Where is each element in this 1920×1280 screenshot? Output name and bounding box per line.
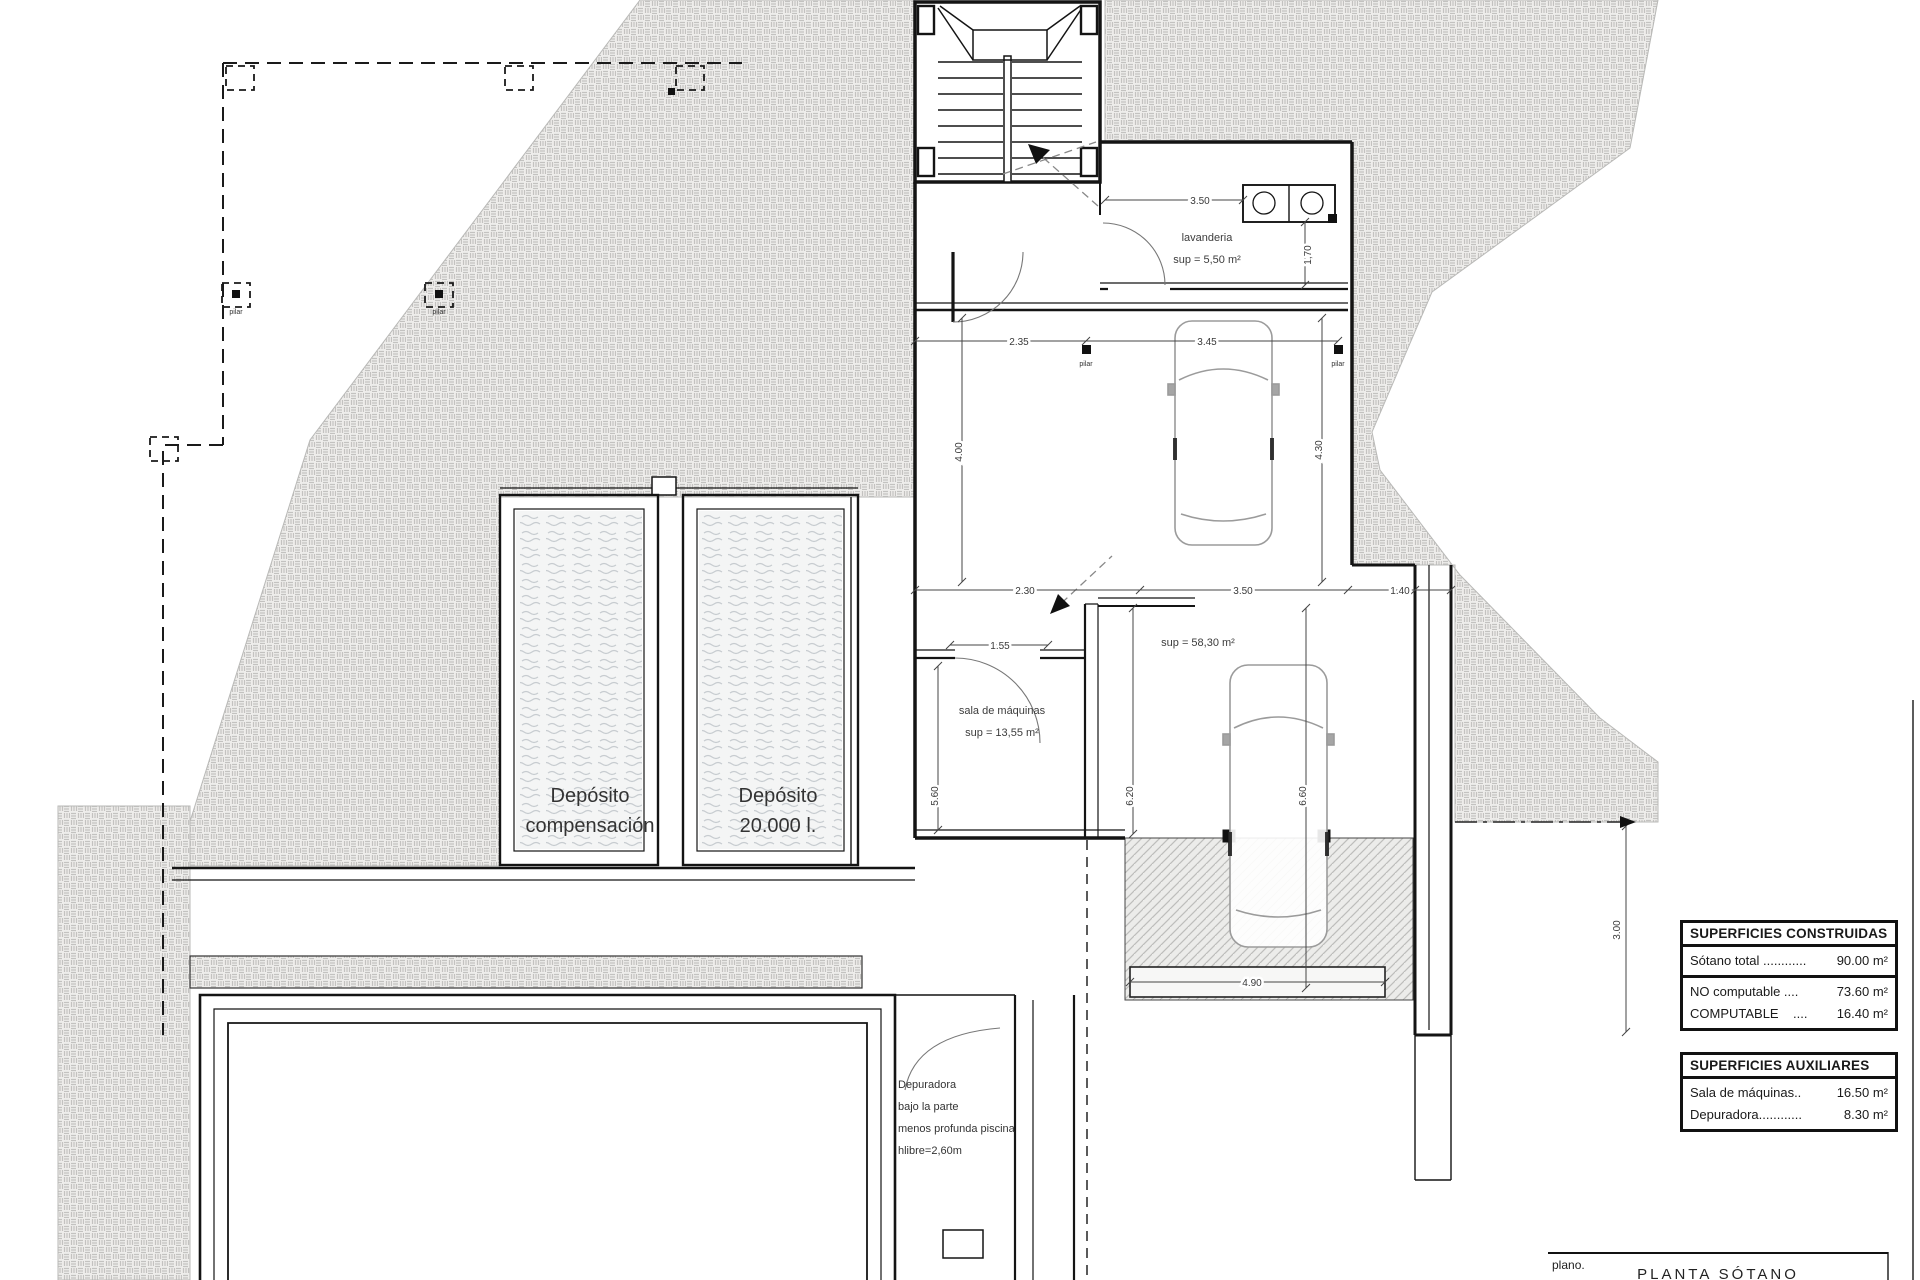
dim-350-top: 3.50 [1190, 196, 1210, 207]
terrain-strip-left [58, 806, 190, 1280]
machine-room-area: sup = 13,55 m² [965, 727, 1039, 739]
pilar-label: pilar [432, 309, 446, 316]
dim-350-mid: 3.50 [1233, 586, 1253, 597]
row-value: 16.40 m² [1837, 1003, 1888, 1025]
title-block-plan-name: PLANTA SÓTANO [1548, 1266, 1888, 1280]
dim-170: 1,70 [1303, 245, 1314, 265]
table-row: Sótano total ............ 90.00 m² [1690, 950, 1888, 972]
depuradora-note-line4: hlibre=2,60m [898, 1145, 962, 1157]
row-label: NO computable .... [1690, 981, 1798, 1003]
depuradora-note-line3: menos profunda piscina [898, 1123, 1016, 1135]
laundry-sink-icon [1301, 192, 1323, 214]
car-lower [1223, 665, 1334, 947]
row-value: 8.30 m² [1844, 1104, 1888, 1126]
row-label: COMPUTABLE .... [1690, 1003, 1808, 1025]
pilar-label: pilar [229, 309, 243, 316]
table-row: COMPUTABLE .... 16.40 m² [1690, 1003, 1888, 1025]
row-label: Sala de máquinas.. [1690, 1082, 1801, 1104]
dim-660: 6.60 [1298, 786, 1309, 806]
tank-compensation-line1: Depósito [551, 785, 630, 807]
laundry-name: lavanderia [1182, 232, 1234, 244]
areas-table-constructed: SUPERFICIES CONSTRUIDAS Sótano total ...… [1680, 920, 1898, 1031]
auxiliary-table-section: Sala de máquinas.. 16.50 m² Depuradora..… [1680, 1079, 1898, 1132]
floor-plan-sheet: pilar pilar [0, 0, 1920, 1280]
machine-room-name: sala de máquinas [959, 705, 1046, 717]
dim-560: 5.60 [930, 786, 941, 806]
floor-plan-drawing: pilar pilar [0, 0, 1920, 1280]
dim-155: 1.55 [990, 641, 1010, 652]
pool-north-wall-hatch [190, 956, 862, 988]
tank-compensation-line2: compensación [526, 815, 655, 837]
depuradora-note-line1: Depuradora [898, 1079, 957, 1091]
row-value: 73.60 m² [1837, 981, 1888, 1003]
row-value: 90.00 m² [1837, 950, 1888, 972]
pilar-label: pilar [1079, 361, 1093, 368]
row-label: Sótano total ............ [1690, 950, 1806, 972]
car-top [1168, 321, 1279, 545]
laundry-sink-icon [1253, 192, 1275, 214]
table-row: NO computable .... 73.60 m² [1690, 981, 1888, 1003]
row-label: Depuradora............ [1690, 1104, 1802, 1126]
dim-235: 2.35 [1009, 337, 1029, 348]
stairwell [915, 2, 1100, 182]
laundry-counter [1243, 185, 1337, 223]
garage-area: sup = 58,30 m² [1161, 637, 1235, 649]
tank-main-line2: 20.000 l. [740, 815, 817, 837]
pilar-label: pilar [1331, 361, 1345, 368]
dim-345: 3.45 [1197, 337, 1217, 348]
tank-main-line1: Depósito [739, 785, 818, 807]
dim-140: 1.40 [1390, 586, 1410, 597]
dim-430: 4.30 [1314, 440, 1325, 460]
row-value: 16.50 m² [1837, 1082, 1888, 1104]
constructed-table-section-split: NO computable .... 73.60 m² COMPUTABLE .… [1680, 978, 1898, 1031]
depuradora-note-line2: bajo la parte [898, 1101, 959, 1113]
table-row: Sala de máquinas.. 16.50 m² [1690, 1082, 1888, 1104]
pool-walls [200, 840, 1087, 1280]
dim-230: 2.30 [1015, 586, 1035, 597]
constructed-table-section-total: Sótano total ............ 90.00 m² [1680, 947, 1898, 978]
dim-400: 4.00 [954, 442, 965, 462]
constructed-table-title: SUPERFICIES CONSTRUIDAS [1680, 920, 1898, 947]
areas-table-auxiliary: SUPERFICIES AUXILIARES Sala de máquinas.… [1680, 1052, 1898, 1132]
dim-620: 6.20 [1125, 786, 1136, 806]
auxiliary-table-title: SUPERFICIES AUXILIARES [1680, 1052, 1898, 1079]
table-row: Depuradora............ 8.30 m² [1690, 1104, 1888, 1126]
title-block: plano. PLANTA SÓTANO [1548, 1252, 1888, 1280]
laundry-area: sup = 5,50 m² [1173, 254, 1241, 266]
dim-490: 4.90 [1242, 978, 1262, 989]
dim-300: 3.00 [1612, 920, 1623, 940]
